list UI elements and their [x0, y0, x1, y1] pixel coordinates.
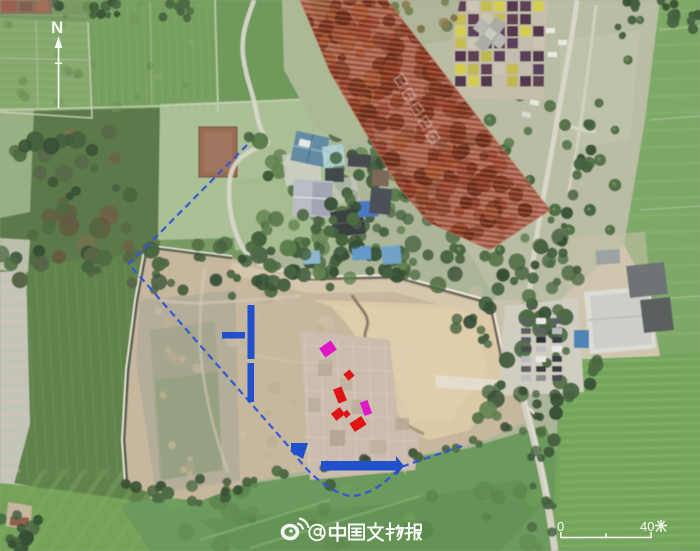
- svg-text:N: N: [51, 18, 63, 37]
- svg-text:40: 40: [640, 519, 654, 534]
- svg-text:0: 0: [557, 519, 564, 534]
